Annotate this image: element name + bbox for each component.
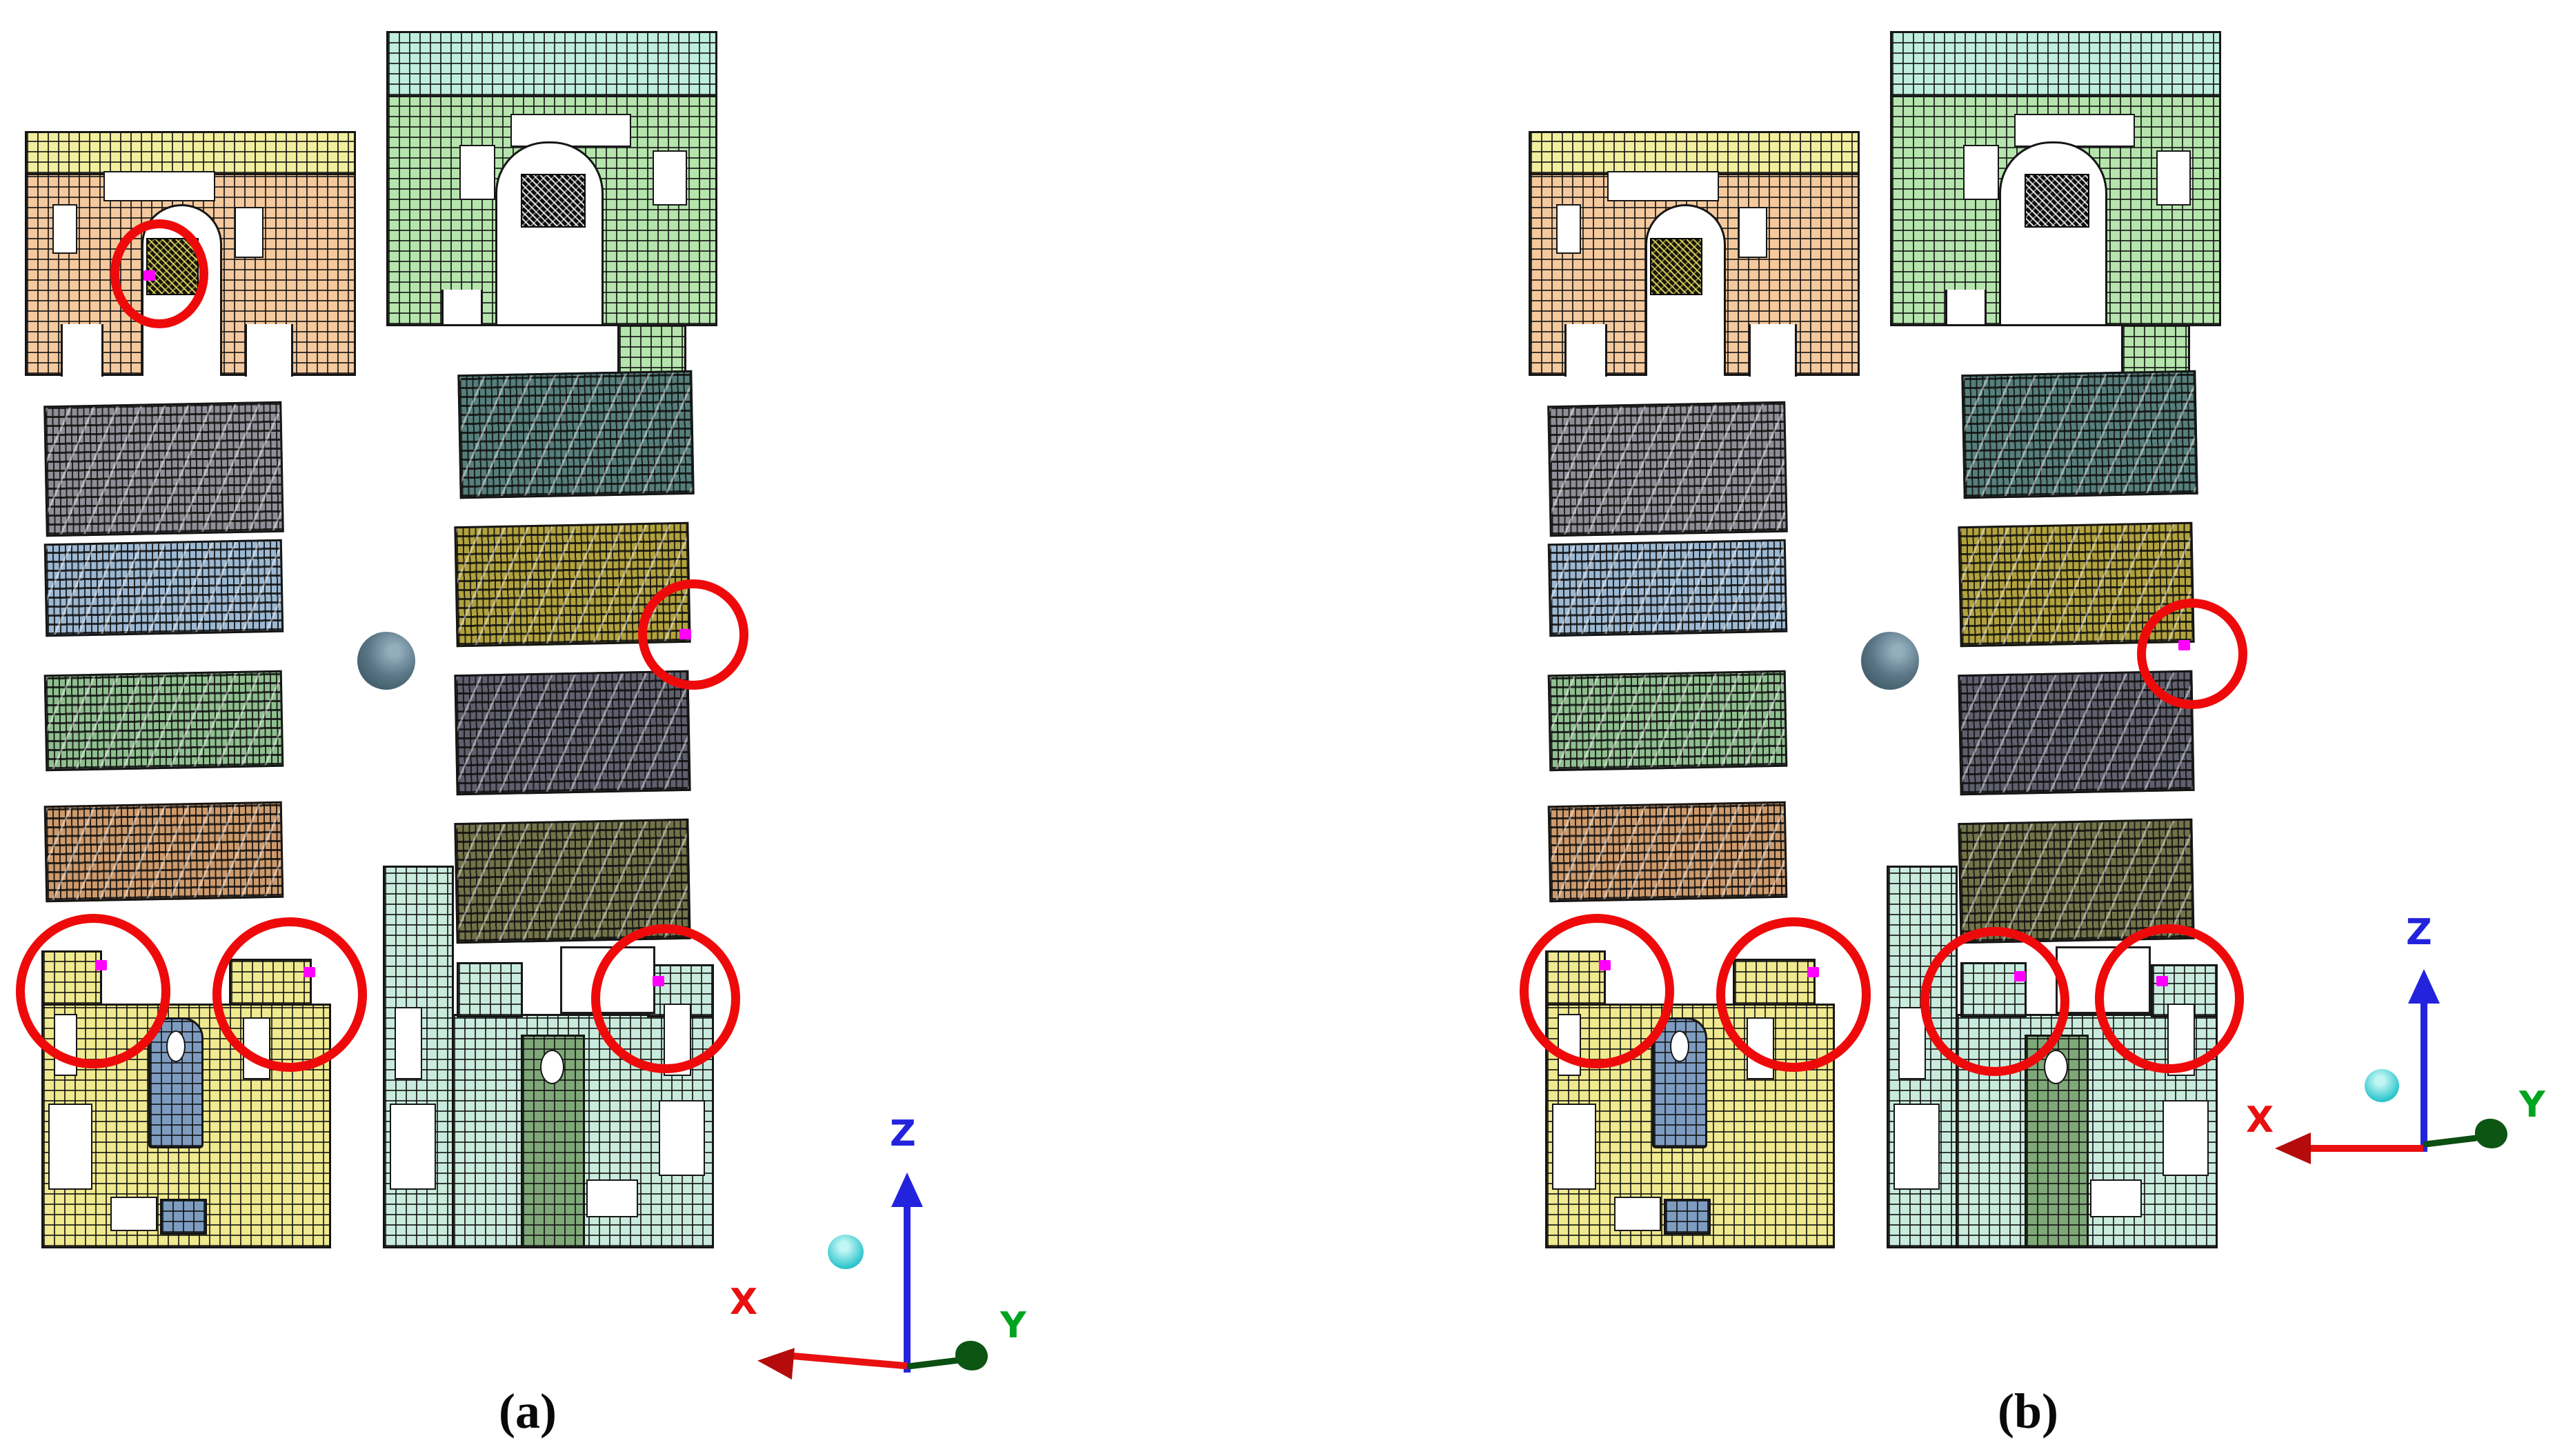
plate-top-left-band <box>25 131 356 175</box>
plate-bottom-left-slot <box>110 1197 157 1231</box>
panel-a: Z X Y (a) <box>0 0 1277 1456</box>
plate-top-right-arch-opening <box>1999 141 2107 324</box>
highlight-circle <box>591 924 740 1073</box>
highlight-circle <box>2095 924 2244 1073</box>
mesh-strip-orange <box>44 801 284 903</box>
axis-x-arrowhead <box>756 1345 795 1379</box>
axis-y-label: Y <box>2519 1087 2545 1123</box>
impactor-sphere <box>357 632 415 690</box>
plate-bottom-right-slot <box>2090 1179 2142 1217</box>
plate-top-left-leg-notch-1 <box>61 324 103 377</box>
axis-y-label: Y <box>1000 1308 1026 1344</box>
plate-bottom-right-hole-1 <box>395 1007 422 1079</box>
plate-bottom-right-hole-2 <box>390 1104 436 1190</box>
panel-b: Z X Y (b) <box>1504 0 2555 1456</box>
highlight-circle <box>1920 927 2069 1076</box>
axis-x-label: X <box>2246 1102 2274 1138</box>
highlight-circle <box>16 914 170 1068</box>
axis-z-shaft <box>904 1204 911 1373</box>
figure-canvas: Z X Y (a) <box>0 0 2555 1456</box>
impactor-sphere <box>1861 632 1919 690</box>
highlight-circle <box>2137 599 2247 709</box>
plate-top-right-hole-left <box>1963 145 1999 200</box>
mesh-strip-gray <box>1547 401 1788 537</box>
highlight-circle <box>110 219 208 328</box>
plate-bottom-right-slot <box>586 1179 638 1217</box>
plate-bottom-left-inset-blue-small <box>1664 1199 1711 1235</box>
contact-patch-dark <box>1650 238 1702 295</box>
panel-caption-b: (b) <box>1952 1383 2104 1440</box>
cyan-node-marker <box>2365 1069 2399 1102</box>
plate-top-left-hole-left <box>52 204 77 254</box>
plate-top-left-slot <box>1607 171 1719 201</box>
highlight-circle <box>212 917 367 1072</box>
green-bar-hole <box>540 1050 564 1084</box>
plate-top-right-slot <box>510 114 631 147</box>
mesh-strip-gray <box>43 401 284 537</box>
plate-top-right-leg-notch <box>441 290 483 324</box>
plate-bottom-right-hole-2 <box>1893 1104 1940 1190</box>
cyan-node-marker <box>828 1235 864 1269</box>
plate-top-right-hole-right <box>2156 150 2191 206</box>
plate-top-right-band <box>386 31 717 97</box>
plate-top-left-leg-notch-2 <box>245 324 293 377</box>
axis-z-label: Z <box>2406 915 2432 950</box>
highlight-circle <box>638 579 748 690</box>
plate-bottom-left-slot <box>1614 1197 1661 1231</box>
green-bar-hole <box>2044 1050 2068 1084</box>
axis-z-label: Z <box>890 1116 916 1152</box>
axis-x-shaft <box>790 1353 907 1370</box>
plate-top-right-hole-left <box>459 145 495 200</box>
plate-bottom-right-hole-4 <box>2163 1100 2209 1176</box>
plate-bottom-left-inset-blue-small <box>160 1199 207 1235</box>
mesh-strip-teal-dark <box>1961 370 2198 499</box>
keyhole-hole <box>166 1030 186 1062</box>
axis-y-shaft <box>907 1357 962 1369</box>
axis-z-arrowhead <box>891 1173 923 1207</box>
axis-y-shaft <box>2423 1135 2479 1148</box>
axis-x-arrowhead <box>2275 1133 2311 1164</box>
axis-z-shaft <box>2420 1000 2427 1152</box>
plate-bottom-left-hole-2 <box>1552 1104 1596 1190</box>
mesh-strip-orange <box>1548 801 1788 903</box>
panel-caption-a: (a) <box>452 1383 604 1440</box>
axis-y-arrowhead <box>955 1341 988 1370</box>
highlight-circle <box>1520 914 1674 1068</box>
axis-z-arrowhead <box>2408 969 2440 1004</box>
plate-top-left-slot <box>103 171 215 201</box>
plate-top-right-arch-opening <box>495 141 604 324</box>
plate-top-right-band <box>1890 31 2221 97</box>
mesh-strip-blue <box>1548 539 1788 637</box>
plate-top-left-hole-left <box>1556 204 1581 254</box>
contact-patch-dark <box>2025 174 2089 228</box>
contact-patch-dark <box>521 174 586 228</box>
highlight-circle <box>1716 917 1871 1072</box>
mesh-strip-green <box>1548 670 1788 772</box>
plate-top-right-hole-right <box>653 150 687 206</box>
plate-top-right-leg-notch <box>1945 290 1987 324</box>
axis-x-shaft <box>2307 1145 2423 1152</box>
plate-top-left-hole-right <box>235 207 264 258</box>
axis-x-label: X <box>730 1284 757 1320</box>
mesh-strip-lavender <box>454 670 690 795</box>
plate-top-left-leg-notch-1 <box>1564 324 1607 377</box>
plate-bottom-left-hole-2 <box>48 1104 92 1190</box>
axis-y-arrowhead <box>2475 1119 2507 1148</box>
plate-top-left-hole-right <box>1738 207 1767 258</box>
keyhole-hole <box>1670 1030 1689 1062</box>
plate-bottom-right-tab-left <box>457 962 523 1017</box>
mesh-strip-teal-dark <box>457 370 694 499</box>
plate-top-left-band <box>1529 131 1860 175</box>
mesh-strip-blue <box>44 539 284 637</box>
plate-top-left-leg-notch-2 <box>1749 324 1797 377</box>
plate-bottom-right-hole-4 <box>659 1100 705 1176</box>
mesh-strip-green <box>44 670 284 772</box>
plate-top-right-slot <box>2014 114 2135 147</box>
